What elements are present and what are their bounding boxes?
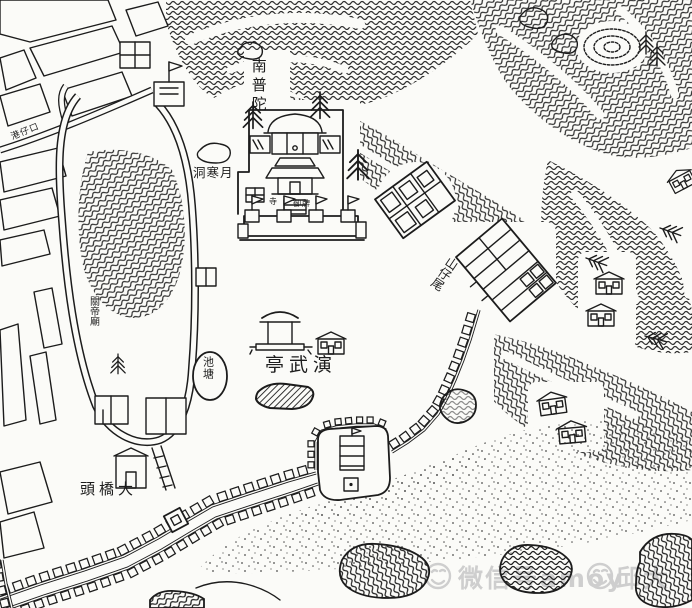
pine-tree [111,354,125,374]
city-hill [78,150,184,318]
battery-fort [318,426,390,500]
boulder-in-wall [440,389,476,423]
gate-tower [154,62,184,106]
sand-stipple [198,420,692,573]
label-bridge-head: 頭橋大 [80,482,137,498]
label-cave: 洞寒月 [193,166,234,179]
yanwu-gate [250,312,312,354]
house [664,164,692,194]
label-temple-small-left: 寺 [269,198,277,206]
yanwu-house [316,332,346,354]
label-parade-pavilion: 亭武演 [265,356,337,376]
label-temple-small-right: 御牌 [293,200,311,208]
hatched-rock [256,384,313,409]
mountain-range-top-right [470,0,692,158]
historical-map: 微信号 amoy 邱大 南普陀 洞寒月 池塘 亭武演 頭橋大 山仔尾 寺 御牌 … [0,0,692,608]
map-drawing: 微信号 amoy 邱大 [0,0,692,608]
shoreline [196,582,280,600]
label-temple-name: 南普陀 [250,58,266,115]
label-shrine: 關帝廟 [87,296,98,326]
label-pond: 池塘 [202,356,214,380]
